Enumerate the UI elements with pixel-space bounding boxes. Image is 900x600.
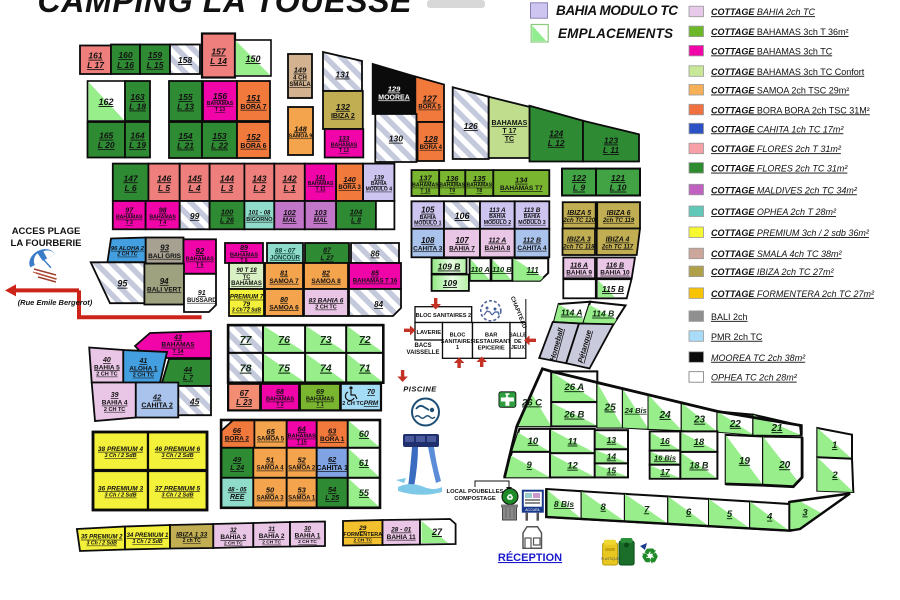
svg-text:149: 149: [294, 66, 307, 75]
svg-text:160: 160: [118, 50, 132, 60]
svg-text:157: 157: [211, 47, 226, 57]
svg-text:72: 72: [359, 334, 371, 346]
svg-text:REE: REE: [230, 494, 245, 501]
svg-text:EMPLACEMENTS: EMPLACEMENTS: [558, 26, 673, 41]
svg-text:BAHAMAS T 16: BAHAMAS T 16: [353, 279, 398, 285]
svg-text:IBIZA 4: IBIZA 4: [606, 237, 630, 244]
svg-text:38 PREMIUM 4: 38 PREMIUM 4: [98, 446, 144, 453]
svg-text:77: 77: [240, 334, 253, 346]
svg-text:104: 104: [350, 208, 363, 217]
svg-text:BORA 4: BORA 4: [420, 145, 443, 151]
svg-text:L 2: L 2: [253, 183, 265, 193]
svg-text:158: 158: [178, 55, 192, 65]
svg-text:129: 129: [388, 85, 401, 94]
svg-text:22: 22: [729, 419, 742, 430]
svg-text:161: 161: [88, 51, 102, 61]
svg-text:LOCAL POUBELLES: LOCAL POUBELLES: [447, 489, 504, 495]
svg-text:112 B: 112 B: [523, 238, 541, 245]
svg-text:107: 107: [455, 236, 469, 245]
svg-text:73: 73: [320, 334, 332, 346]
svg-text:MODULO 2: MODULO 2: [484, 220, 511, 226]
svg-text:COTTAGE IBIZA 2ch TC 27m²: COTTAGE IBIZA 2ch TC 27m²: [711, 267, 835, 277]
svg-text:5: 5: [727, 509, 733, 520]
svg-text:130: 130: [389, 134, 403, 144]
svg-text:COTTAGE FLORES 2ch T 31m²: COTTAGE FLORES 2ch T 31m²: [711, 144, 842, 154]
svg-text:BUSSARD: BUSSARD: [187, 298, 217, 304]
svg-text:8: 8: [601, 502, 607, 513]
svg-text:MOOREA: MOOREA: [378, 94, 410, 101]
svg-text:31: 31: [268, 527, 275, 533]
svg-text:26 B: 26 B: [563, 410, 584, 421]
svg-text:135: 135: [473, 174, 486, 183]
svg-text:87: 87: [323, 247, 332, 254]
svg-text:L 11: L 11: [603, 145, 619, 155]
svg-text:2ch TC 118: 2ch TC 118: [562, 244, 595, 250]
svg-text:BORA 7: BORA 7: [240, 104, 266, 111]
svg-text:41: 41: [139, 358, 148, 365]
svg-text:85: 85: [371, 271, 379, 278]
svg-text:TC: TC: [243, 274, 250, 280]
svg-text:151: 151: [246, 93, 260, 103]
svg-text:L 5: L 5: [158, 183, 170, 193]
svg-text:52: 52: [298, 456, 307, 465]
svg-text:67: 67: [240, 389, 249, 398]
svg-text:146: 146: [157, 173, 171, 183]
svg-text:6: 6: [686, 507, 692, 518]
svg-text:L 7: L 7: [183, 375, 194, 382]
svg-text:T9: T9: [449, 188, 455, 194]
svg-text:L 15: L 15: [147, 60, 164, 70]
svg-text:75: 75: [278, 363, 290, 375]
svg-text:28 - 01: 28 - 01: [390, 527, 412, 534]
svg-text:152: 152: [246, 132, 260, 142]
svg-text:L 21: L 21: [177, 141, 194, 151]
svg-text:PISCINE: PISCINE: [403, 385, 437, 394]
svg-text:12: 12: [567, 461, 578, 472]
svg-text:150: 150: [245, 54, 260, 64]
svg-text:SAMOA 4: SAMOA 4: [256, 466, 284, 472]
svg-text:84: 84: [374, 300, 383, 309]
svg-text:2 CH TC: 2 CH TC: [298, 539, 317, 545]
svg-text:JONCOUR: JONCOUR: [270, 255, 301, 261]
svg-text:15: 15: [607, 466, 617, 476]
svg-text:MODULO 4: MODULO 4: [366, 187, 393, 193]
svg-text:140: 140: [343, 175, 356, 184]
svg-text:132: 132: [336, 102, 350, 112]
svg-text:BAHIA MODULO TC: BAHIA MODULO TC: [556, 3, 678, 18]
svg-text:SMALA: SMALA: [289, 82, 311, 88]
svg-text:8 Bis: 8 Bis: [554, 499, 575, 509]
svg-text:MAL: MAL: [283, 217, 297, 224]
svg-text:L 26: L 26: [220, 217, 234, 224]
svg-text:70: 70: [367, 389, 375, 396]
svg-text:51: 51: [266, 456, 274, 465]
svg-text:2 CH TC: 2 CH TC: [342, 401, 363, 407]
svg-text:BALI 2ch: BALI 2ch: [711, 312, 748, 322]
svg-text:BAHIA 4: BAHIA 4: [102, 400, 128, 407]
svg-text:148: 148: [294, 124, 307, 133]
svg-text:137: 137: [419, 174, 432, 183]
svg-text:RESTAURANT: RESTAURANT: [471, 339, 511, 345]
svg-text:101 - 08: 101 - 08: [248, 211, 271, 217]
svg-text:30: 30: [304, 526, 311, 532]
svg-text:LA FOURBERIE: LA FOURBERIE: [11, 238, 82, 249]
svg-text:136: 136: [446, 174, 459, 183]
svg-text:BORA 1: BORA 1: [320, 436, 345, 443]
svg-text:142: 142: [283, 173, 297, 183]
svg-text:IBIZA 6: IBIZA 6: [607, 210, 631, 217]
svg-text:89: 89: [240, 245, 248, 252]
svg-text:74: 74: [320, 363, 332, 375]
svg-text:109 B: 109 B: [438, 262, 461, 272]
svg-text:(Rue Emile Bergerot): (Rue Emile Bergerot): [18, 298, 93, 307]
svg-text:4: 4: [766, 512, 773, 523]
svg-text:23: 23: [693, 415, 706, 426]
svg-text:BAHIA 1: BAHIA 1: [295, 533, 321, 540]
svg-text:3 Ch / 2 SdB: 3 Ch / 2 SdB: [132, 539, 163, 545]
svg-text:BAHAMAS: BAHAMAS: [161, 342, 195, 349]
svg-text:71: 71: [359, 363, 371, 375]
svg-text:2 CH TC: 2 CH TC: [104, 407, 125, 413]
svg-text:ACCES PLAGE: ACCES PLAGE: [12, 226, 81, 237]
svg-text:COTTAGE SAMOA 2ch TSC 29m²: COTTAGE SAMOA 2ch TSC 29m²: [711, 86, 849, 96]
svg-text:10: 10: [528, 436, 539, 447]
svg-text:112 A: 112 A: [488, 238, 506, 245]
svg-text:114 A: 114 A: [561, 308, 583, 318]
svg-text:11: 11: [568, 437, 578, 448]
svg-text:37 PREMIUM 5: 37 PREMIUM 5: [155, 485, 201, 492]
svg-text:21: 21: [770, 423, 783, 434]
svg-text:60: 60: [359, 429, 369, 439]
svg-text:BLOC: BLOC: [450, 333, 466, 339]
svg-text:COTTAGE SMALA 4ch TC 38m²: COTTAGE SMALA 4ch TC 38m²: [711, 249, 843, 259]
svg-text:T 11: T 11: [316, 187, 326, 193]
svg-text:122: 122: [572, 173, 586, 183]
svg-text:53: 53: [298, 486, 307, 495]
svg-text:BIGORNO: BIGORNO: [246, 217, 273, 223]
svg-text:L 9: L 9: [573, 183, 585, 193]
svg-text:42: 42: [152, 392, 162, 401]
svg-text:26 A: 26 A: [563, 382, 584, 393]
svg-text:BAHAMAS T7: BAHAMAS T7: [500, 185, 543, 192]
svg-text:PRM: PRM: [364, 400, 379, 407]
svg-text:93: 93: [160, 243, 169, 252]
svg-text:L 6: L 6: [125, 183, 137, 193]
svg-text:116 A: 116 A: [570, 262, 588, 269]
svg-text:90 T 18: 90 T 18: [236, 268, 257, 274]
svg-text:2 CH TC: 2 CH TC: [224, 541, 243, 547]
svg-text:SAMOA 8: SAMOA 8: [311, 278, 341, 285]
svg-text:46 PREMIUM 6: 46 PREMIUM 6: [154, 446, 201, 453]
svg-text:99: 99: [190, 211, 200, 221]
svg-text:32: 32: [230, 528, 237, 534]
svg-text:PLASTIQUE: PLASTIQUE: [601, 557, 619, 561]
svg-text:L 1: L 1: [284, 183, 296, 193]
svg-text:BAHIA 11: BAHIA 11: [387, 534, 416, 541]
svg-text:24 Bis: 24 Bis: [624, 406, 647, 415]
svg-text:3 Ch / 2 SdB: 3 Ch / 2 SdB: [87, 541, 118, 547]
svg-text:T 15: T 15: [297, 439, 307, 445]
svg-text:95: 95: [117, 279, 128, 289]
svg-text:55: 55: [359, 488, 370, 498]
svg-text:162: 162: [98, 97, 113, 107]
svg-text:86: 86: [371, 250, 380, 259]
svg-text:COMPOSTAGE: COMPOSTAGE: [454, 496, 496, 502]
svg-text:113 A: 113 A: [489, 207, 506, 214]
svg-text:BALI GRIS: BALI GRIS: [148, 253, 182, 260]
svg-text:50: 50: [266, 486, 275, 495]
svg-text:2ch TC 117: 2ch TC 117: [601, 244, 634, 250]
svg-text:FORMENTERA: FORMENTERA: [343, 532, 382, 538]
svg-text:T 12: T 12: [339, 148, 349, 154]
svg-text:L 4: L 4: [189, 183, 201, 193]
svg-text:2 CH TC: 2 CH TC: [262, 540, 281, 546]
svg-text:131: 131: [335, 70, 349, 80]
svg-text:PMR 2ch TC: PMR 2ch TC: [711, 332, 763, 342]
svg-text:144: 144: [220, 173, 234, 183]
svg-text:L 3: L 3: [221, 183, 233, 193]
svg-text:T 2: T 2: [276, 402, 283, 408]
svg-text:82: 82: [322, 270, 330, 277]
svg-text:L 22: L 22: [211, 141, 228, 151]
svg-text:T 17: T 17: [502, 128, 516, 135]
svg-text:BAHIA 8: BAHIA 8: [485, 245, 511, 252]
svg-text:IBIZA 2: IBIZA 2: [331, 113, 355, 120]
svg-text:2 CH TC: 2 CH TC: [96, 372, 117, 378]
svg-text:108: 108: [421, 236, 435, 245]
svg-text:98: 98: [159, 208, 167, 215]
svg-text:43: 43: [173, 334, 182, 341]
svg-text:2: 2: [831, 470, 838, 481]
svg-text:COTTAGE BAHAMAS 3ch T 36m²: COTTAGE BAHAMAS 3ch T 36m²: [711, 27, 849, 37]
svg-text:25: 25: [604, 402, 617, 413]
svg-text:BAHIA 3: BAHIA 3: [220, 534, 246, 541]
svg-text:COTTAGE BORA BORA 2ch TSC 31M²: COTTAGE BORA BORA 2ch TSC 31M²: [711, 105, 870, 115]
svg-text:3 Ch / 2 SdB: 3 Ch / 2 SdB: [104, 453, 136, 459]
svg-text:SAMOA 3: SAMOA 3: [256, 496, 284, 502]
svg-text:83 BAHIA 6: 83 BAHIA 6: [309, 297, 344, 304]
svg-text:3 Ch / 2 SdB: 3 Ch / 2 SdB: [161, 453, 193, 459]
svg-text:156: 156: [213, 91, 227, 101]
svg-text:68: 68: [276, 389, 284, 396]
svg-text:164: 164: [130, 131, 144, 141]
svg-text:63: 63: [328, 427, 337, 436]
svg-text:SANITAIRES: SANITAIRES: [441, 339, 475, 345]
svg-text:69: 69: [316, 389, 324, 396]
svg-text:L 17: L 17: [87, 60, 105, 70]
svg-text:L 16: L 16: [117, 60, 134, 70]
svg-text:SALLE: SALLE: [509, 333, 527, 339]
svg-text:2 CH TC: 2 CH TC: [133, 373, 154, 379]
svg-text:2 CH TC: 2 CH TC: [315, 305, 336, 311]
svg-text:40: 40: [102, 357, 111, 364]
svg-text:COTTAGE BAHIA 2ch TC: COTTAGE BAHIA 2ch TC: [711, 7, 816, 17]
svg-text:SAMOA 6: SAMOA 6: [269, 304, 299, 311]
svg-text:2 CH TC: 2 CH TC: [116, 252, 137, 258]
svg-text:65: 65: [266, 427, 275, 436]
svg-text:100: 100: [221, 208, 234, 217]
svg-text:97: 97: [125, 208, 134, 215]
svg-text:SAMOA 9: SAMOA 9: [289, 134, 313, 140]
svg-text:PREMIUM 7: PREMIUM 7: [230, 295, 264, 301]
svg-text:TC: TC: [505, 136, 514, 143]
svg-text:154: 154: [178, 131, 192, 141]
svg-text:CAMPING LA TOUESSE: CAMPING LA TOUESSE: [38, 0, 414, 19]
svg-text:ACCUEIL: ACCUEIL: [525, 508, 540, 512]
svg-text:T 3: T 3: [126, 220, 133, 226]
svg-text:103: 103: [314, 208, 327, 217]
svg-text:14: 14: [607, 451, 617, 461]
svg-text:COTTAGE OPHEA 2ch T 28m²: COTTAGE OPHEA 2ch T 28m²: [711, 207, 837, 217]
svg-text:T8: T8: [476, 188, 482, 194]
svg-text:RÉCEPTION: RÉCEPTION: [498, 551, 562, 564]
svg-text:BALI VERT: BALI VERT: [147, 286, 181, 293]
svg-text:81: 81: [280, 270, 288, 277]
svg-text:113 B: 113 B: [524, 207, 541, 214]
svg-text:147: 147: [124, 173, 139, 183]
svg-text:155: 155: [178, 92, 192, 102]
svg-text:MAL: MAL: [313, 217, 327, 224]
svg-text:EPICERIE: EPICERIE: [478, 345, 505, 351]
svg-text:MOOREA TC 2ch 38m²: MOOREA TC 2ch 38m²: [711, 353, 806, 363]
svg-text:7: 7: [644, 504, 650, 515]
svg-text:16 Bis: 16 Bis: [654, 453, 676, 462]
svg-text:102: 102: [283, 208, 296, 217]
svg-text:L 13: L 13: [177, 102, 194, 112]
svg-text:CAHITA 1: CAHITA 1: [316, 465, 348, 472]
svg-text:159: 159: [148, 50, 162, 60]
svg-text:MODULO 1: MODULO 1: [414, 221, 441, 227]
svg-text:110 A: 110 A: [471, 265, 490, 274]
svg-text:2ch TC 119: 2ch TC 119: [602, 218, 635, 224]
svg-text:SAMOA 1: SAMOA 1: [288, 496, 316, 502]
svg-text:29: 29: [358, 525, 367, 532]
svg-text:COTTAGE FLORES 2ch TC 31m²: COTTAGE FLORES 2ch TC 31m²: [711, 164, 848, 174]
svg-text:2 ch TC: 2 ch TC: [183, 538, 201, 544]
svg-text:BAHIA 2: BAHIA 2: [259, 533, 285, 540]
svg-text:T 14: T 14: [172, 349, 184, 355]
svg-text:165: 165: [99, 131, 113, 141]
svg-text:L 8: L 8: [351, 217, 361, 224]
svg-text:134: 134: [515, 176, 528, 185]
svg-text:62: 62: [328, 455, 337, 464]
svg-text:76: 76: [278, 334, 290, 346]
svg-text:128: 128: [424, 134, 438, 144]
svg-text:SAMOA 2: SAMOA 2: [288, 466, 316, 472]
svg-text:13: 13: [607, 435, 617, 445]
svg-text:27: 27: [431, 527, 443, 537]
svg-text:BAHIA 5: BAHIA 5: [94, 364, 120, 371]
svg-text:CAHITA 3: CAHITA 3: [413, 245, 443, 252]
svg-text:36 PREMIUM 3: 36 PREMIUM 3: [98, 485, 144, 492]
svg-text:80: 80: [280, 297, 288, 304]
svg-text:115 B: 115 B: [602, 284, 624, 294]
svg-text:T 10: T 10: [420, 188, 430, 194]
svg-text:3: 3: [802, 507, 808, 518]
svg-text:BORA 5: BORA 5: [418, 105, 441, 111]
svg-text:153: 153: [212, 131, 226, 141]
svg-text:3 Ch / 2 SdB: 3 Ch / 2 SdB: [232, 308, 262, 314]
svg-text:18: 18: [694, 437, 705, 448]
svg-text:BACS: BACS: [414, 343, 431, 349]
svg-text:♻: ♻: [641, 546, 659, 568]
svg-text:109: 109: [443, 278, 457, 288]
svg-text:MODULO 3: MODULO 3: [518, 220, 545, 226]
svg-text:OPHEA TC 2ch 28m²: OPHEA TC 2ch 28m²: [711, 373, 798, 383]
svg-text:49: 49: [232, 455, 242, 464]
svg-text:88 - 07: 88 - 07: [275, 248, 296, 255]
svg-text:94: 94: [160, 277, 169, 286]
svg-text:ALOHA 1: ALOHA 1: [129, 365, 158, 372]
svg-text:54: 54: [328, 485, 337, 494]
svg-text:L 27: L 27: [321, 255, 334, 262]
svg-text:COTTAGE FORMENTERA 2ch TC 27m²: COTTAGE FORMENTERA 2ch TC 27m²: [711, 289, 875, 299]
svg-text:IBIZA 3: IBIZA 3: [567, 237, 591, 244]
svg-text:T 13: T 13: [215, 107, 225, 113]
svg-text:SAMOA 7: SAMOA 7: [269, 278, 299, 285]
svg-text:145: 145: [188, 173, 202, 183]
svg-text:L 19: L 19: [129, 140, 146, 150]
svg-text:18 B: 18 B: [689, 461, 709, 471]
svg-text:48 - 05: 48 - 05: [227, 488, 247, 494]
svg-text:3 Ch / 2 SdB: 3 Ch / 2 SdB: [161, 493, 193, 499]
svg-text:COTTAGE CAHITA 1ch TC 17m²: COTTAGE CAHITA 1ch TC 17m²: [711, 124, 844, 134]
svg-text:78: 78: [240, 363, 252, 375]
svg-text:91: 91: [198, 290, 206, 297]
svg-text:L 18: L 18: [129, 102, 146, 112]
svg-text:2ch TC 120: 2ch TC 120: [562, 218, 595, 224]
svg-text:LAVERIE: LAVERIE: [416, 330, 441, 336]
svg-text:BAHIA 7: BAHIA 7: [449, 245, 475, 252]
svg-text:92: 92: [195, 247, 204, 256]
svg-text:BORA 3: BORA 3: [338, 185, 361, 191]
svg-text:L 12: L 12: [548, 138, 565, 148]
svg-text:BORA 2: BORA 2: [225, 435, 250, 442]
svg-text:61: 61: [359, 458, 369, 468]
svg-text:COTTAGE BAHAMAS 3ch TC: COTTAGE BAHAMAS 3ch TC: [711, 46, 833, 56]
svg-text:L 23: L 23: [236, 398, 252, 407]
svg-text:143: 143: [252, 173, 266, 183]
svg-text:BLOC SANITAIRES 2: BLOC SANITAIRES 2: [416, 313, 472, 319]
svg-text:JEUX: JEUX: [511, 345, 525, 351]
svg-text:♻: ♻: [506, 493, 513, 502]
svg-text:39: 39: [111, 392, 119, 399]
svg-text:20: 20: [778, 460, 791, 471]
svg-text:66: 66: [233, 426, 242, 435]
svg-text:CAHITA 2: CAHITA 2: [141, 402, 173, 409]
svg-text:45: 45: [189, 396, 200, 406]
svg-text:19: 19: [739, 456, 751, 467]
svg-text:44: 44: [183, 365, 193, 374]
svg-text:T 5: T 5: [196, 262, 203, 268]
svg-text:17: 17: [660, 467, 671, 477]
svg-text:121: 121: [611, 173, 625, 183]
svg-text:COTTAGE PREMIUM 3ch / 2 sdb 36: COTTAGE PREMIUM 3ch / 2 sdb 36m²: [711, 228, 870, 238]
svg-text:SAMOA 5: SAMOA 5: [257, 437, 285, 443]
svg-text:L 10: L 10: [610, 183, 627, 193]
svg-text:163: 163: [130, 92, 144, 102]
svg-text:106: 106: [454, 211, 470, 221]
svg-text:BORA 6: BORA 6: [240, 143, 266, 150]
svg-text:116 B: 116 B: [606, 262, 624, 269]
svg-text:4 CH: 4 CH: [293, 76, 307, 82]
svg-text:3 Ch / 2 SdB: 3 Ch / 2 SdB: [104, 493, 136, 499]
svg-text:1: 1: [832, 440, 837, 451]
svg-text:126: 126: [464, 121, 478, 131]
svg-text:COTTAGE BAHAMAS 3ch TC Confort: COTTAGE BAHAMAS 3ch TC Confort: [711, 67, 865, 77]
svg-text:L 20: L 20: [98, 140, 115, 150]
svg-text:BAHIA 10: BAHIA 10: [600, 270, 630, 277]
